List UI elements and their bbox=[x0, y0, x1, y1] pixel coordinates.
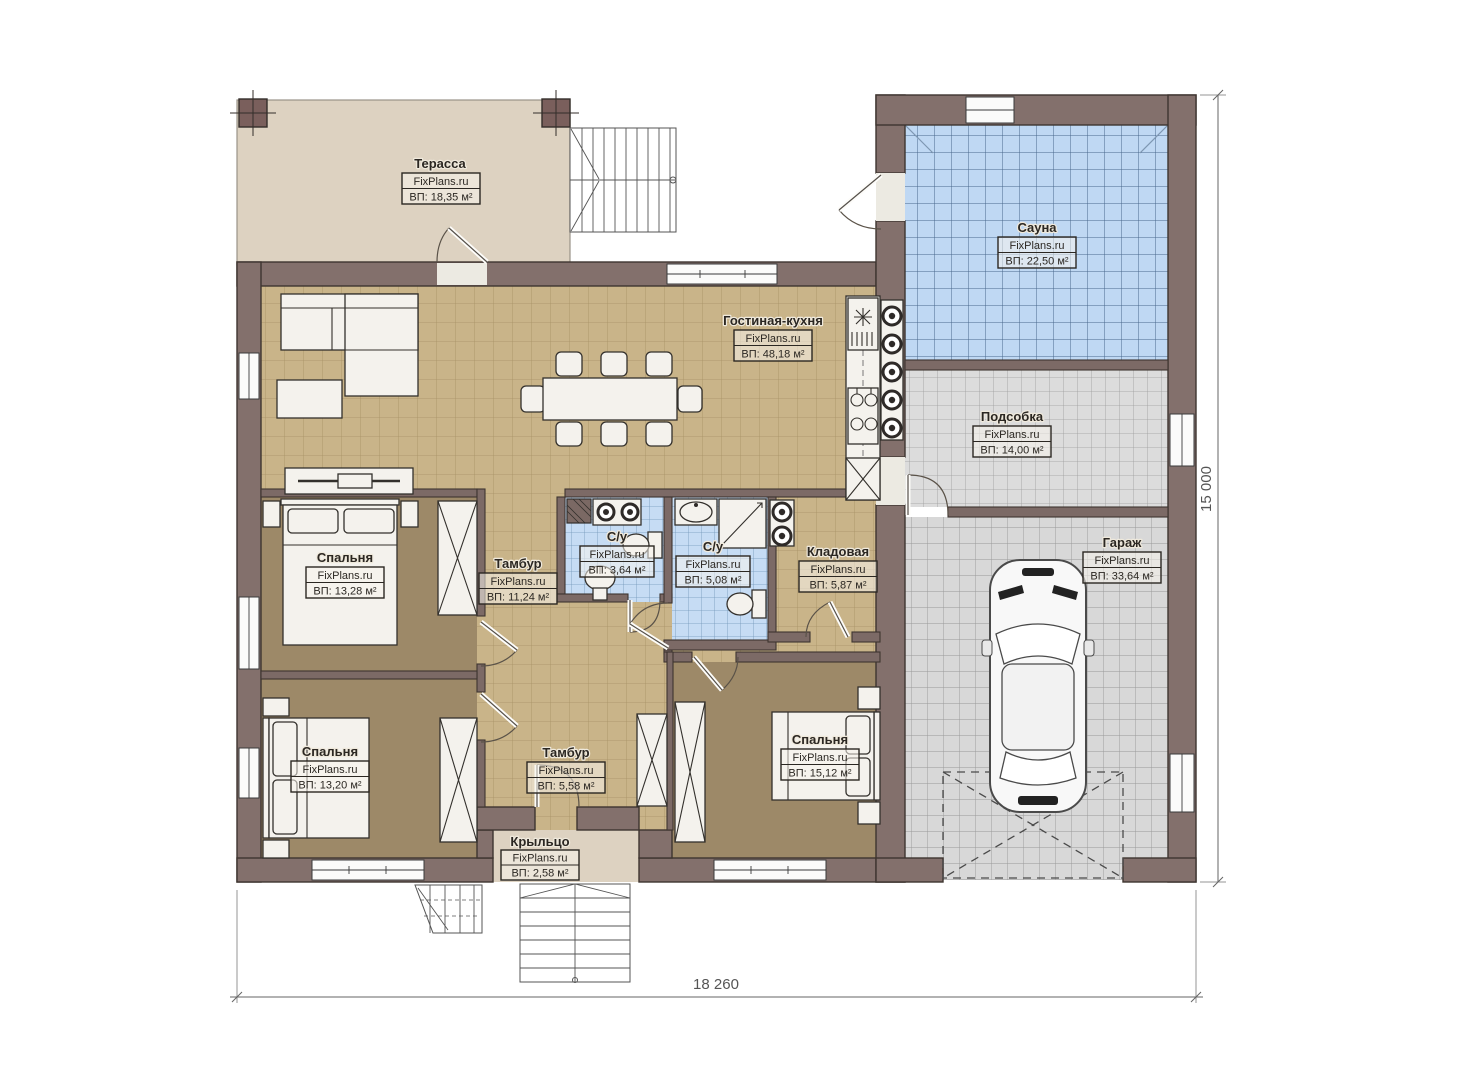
exterior-stairs-side bbox=[415, 885, 482, 933]
room-label-bedroom-1: Спальня FixPlans.ru ВП: 13,28 м² bbox=[306, 550, 384, 598]
nightstand bbox=[263, 840, 289, 858]
base-cabinet bbox=[846, 458, 880, 500]
room-name: С/у bbox=[607, 529, 628, 544]
room-name: Терасса bbox=[414, 156, 466, 171]
room-label-storage: Кладовая FixPlans.ru ВП: 5,87 м² bbox=[799, 544, 877, 592]
room-name: Спальня bbox=[317, 550, 373, 565]
room-area: ВП: 48,18 м² bbox=[741, 349, 805, 361]
watermark: FixPlans.ru bbox=[685, 559, 740, 571]
mirror-right bbox=[1084, 640, 1094, 656]
tv-stand bbox=[285, 468, 413, 494]
watermark: FixPlans.ru bbox=[589, 549, 644, 561]
wall-storage-bottom-a bbox=[768, 632, 810, 642]
wall-sauna-utility bbox=[905, 360, 1168, 370]
fridge bbox=[848, 298, 878, 350]
room-label-bedroom-3: Спальня FixPlans.ru ВП: 15,12 м² bbox=[781, 732, 859, 780]
wall-bottom-garage-right bbox=[1123, 858, 1196, 882]
wall-bottom-garage-left bbox=[876, 858, 943, 882]
wall-vestibule-porch-b bbox=[577, 807, 639, 830]
room-area: ВП: 11,24 м² bbox=[487, 592, 550, 604]
car bbox=[982, 560, 1094, 812]
wall-bedroom1-bedroom2 bbox=[261, 671, 477, 679]
room-area: ВП: 5,58 м² bbox=[537, 781, 594, 793]
fixtures-storage bbox=[770, 500, 794, 546]
wall-porch-stub-left bbox=[477, 830, 493, 858]
wall-utility-garage bbox=[948, 507, 1168, 517]
floor-garage-door-apron bbox=[943, 858, 1123, 880]
wall-bath1-bath2 bbox=[664, 497, 672, 603]
room-area: ВП: 3,64 м² bbox=[588, 565, 645, 577]
window-bedroom2-bottom bbox=[312, 860, 424, 880]
watermark: FixPlans.ru bbox=[512, 853, 567, 865]
nightstand bbox=[858, 687, 880, 709]
window-garage-right bbox=[1170, 754, 1194, 812]
wall-top-right-block bbox=[876, 95, 1196, 125]
rear-trim bbox=[1018, 796, 1058, 805]
window-sauna-top bbox=[966, 97, 1014, 123]
window-living-left bbox=[239, 353, 259, 399]
nightstand bbox=[858, 802, 880, 824]
wall-bedroom1-right-b bbox=[477, 664, 485, 692]
coffee-table bbox=[277, 380, 342, 418]
window-bedroom1-left bbox=[239, 597, 259, 669]
toilet bbox=[727, 590, 766, 618]
room-name: Тамбур bbox=[542, 745, 589, 760]
wall-porch-stub-right bbox=[639, 830, 672, 858]
stove bbox=[848, 388, 878, 444]
wardrobe bbox=[675, 702, 705, 842]
room-area: ВП: 14,00 м² bbox=[980, 445, 1044, 457]
wall-baths-top bbox=[565, 489, 880, 497]
watermark: FixPlans.ru bbox=[745, 333, 800, 345]
watermark: FixPlans.ru bbox=[1094, 555, 1149, 567]
wardrobe bbox=[637, 714, 667, 806]
watermark: FixPlans.ru bbox=[490, 576, 545, 588]
watermark: FixPlans.ru bbox=[413, 176, 468, 188]
wall-top-main bbox=[237, 262, 876, 286]
watermark: FixPlans.ru bbox=[317, 570, 372, 582]
dimension-height: 15 000 bbox=[1198, 466, 1215, 512]
watermark: FixPlans.ru bbox=[1009, 240, 1064, 252]
room-area: ВП: 22,50 м² bbox=[1005, 256, 1069, 268]
room-name: Спальня bbox=[302, 744, 358, 759]
wall-bedroom3-top-b bbox=[736, 652, 880, 662]
room-label-porch: Крыльцо FixPlans.ru ВП: 2,58 м² bbox=[501, 834, 579, 880]
nightstand bbox=[401, 501, 418, 527]
room-name: Гараж bbox=[1103, 535, 1143, 550]
chimney-flues bbox=[881, 300, 903, 440]
room-name: Подсобка bbox=[981, 409, 1044, 424]
room-name: Крыльцо bbox=[510, 834, 569, 849]
room-label-utility: Подсобка FixPlans.ru ВП: 14,00 м² bbox=[973, 409, 1051, 457]
exterior-stairs-bottom bbox=[415, 884, 630, 983]
door-sauna-exterior bbox=[839, 173, 905, 229]
wall-bedroom3-left bbox=[667, 652, 673, 830]
shower bbox=[719, 499, 766, 548]
floor-plan-drawing: 18 260 15 000 Терасса FixPlans.ru ВП: 18… bbox=[0, 0, 1473, 1080]
mirror-left bbox=[982, 640, 992, 656]
room-area: ВП: 2,58 м² bbox=[511, 868, 568, 880]
room-area: ВП: 13,28 м² bbox=[313, 586, 377, 598]
floor-plan-page: 18 260 15 000 Терасса FixPlans.ru ВП: 18… bbox=[0, 0, 1473, 1080]
dining-table bbox=[543, 378, 677, 420]
room-area: ВП: 15,12 м² bbox=[788, 768, 852, 780]
window-bedroom2-left bbox=[239, 748, 259, 798]
room-name: Гостиная-кухня bbox=[723, 313, 823, 328]
room-name: С/у bbox=[703, 539, 724, 554]
exterior-stairs-top bbox=[570, 128, 676, 232]
wardrobe bbox=[438, 501, 477, 615]
wall-vestibule-porch-a bbox=[477, 807, 535, 830]
watermark: FixPlans.ru bbox=[302, 764, 357, 776]
window-utility-right bbox=[1170, 414, 1194, 466]
double-sink-unit bbox=[593, 499, 641, 525]
dimension-width: 18 260 bbox=[693, 976, 739, 993]
watermark: FixPlans.ru bbox=[810, 564, 865, 576]
watermark: FixPlans.ru bbox=[984, 429, 1039, 441]
room-area: ВП: 33,64 м² bbox=[1090, 571, 1154, 583]
room-name: Тамбур bbox=[494, 556, 541, 571]
window-bedroom3-bottom bbox=[714, 860, 826, 880]
window-living-top bbox=[667, 264, 777, 284]
room-name: Спальня bbox=[792, 732, 848, 747]
room-area: ВП: 13,20 м² bbox=[298, 780, 362, 792]
room-area: ВП: 18,35 м² bbox=[409, 192, 473, 204]
watermark: FixPlans.ru bbox=[792, 752, 847, 764]
wall-storage-bottom-b bbox=[852, 632, 880, 642]
room-area: ВП: 5,08 м² bbox=[684, 575, 741, 587]
watermark: FixPlans.ru bbox=[538, 765, 593, 777]
room-label-bedroom-2: Спальня FixPlans.ru ВП: 13,20 м² bbox=[291, 744, 369, 792]
car-roof bbox=[1002, 664, 1074, 750]
nightstand bbox=[263, 501, 280, 527]
wardrobe bbox=[440, 718, 477, 842]
wall-bath2-bottom bbox=[664, 640, 776, 650]
nightstand bbox=[263, 698, 289, 716]
wall-bedroom1-right-c bbox=[477, 740, 485, 807]
wall-bath1-left bbox=[557, 497, 565, 594]
room-name: Кладовая bbox=[807, 544, 869, 559]
room-name: Сауна bbox=[1017, 220, 1057, 235]
sink bbox=[675, 499, 717, 525]
room-area: ВП: 5,87 м² bbox=[809, 580, 866, 592]
room-label-living-kitchen: Гостиная-кухня FixPlans.ru ВП: 48,18 м² bbox=[723, 313, 823, 361]
washing-machine bbox=[567, 499, 591, 523]
